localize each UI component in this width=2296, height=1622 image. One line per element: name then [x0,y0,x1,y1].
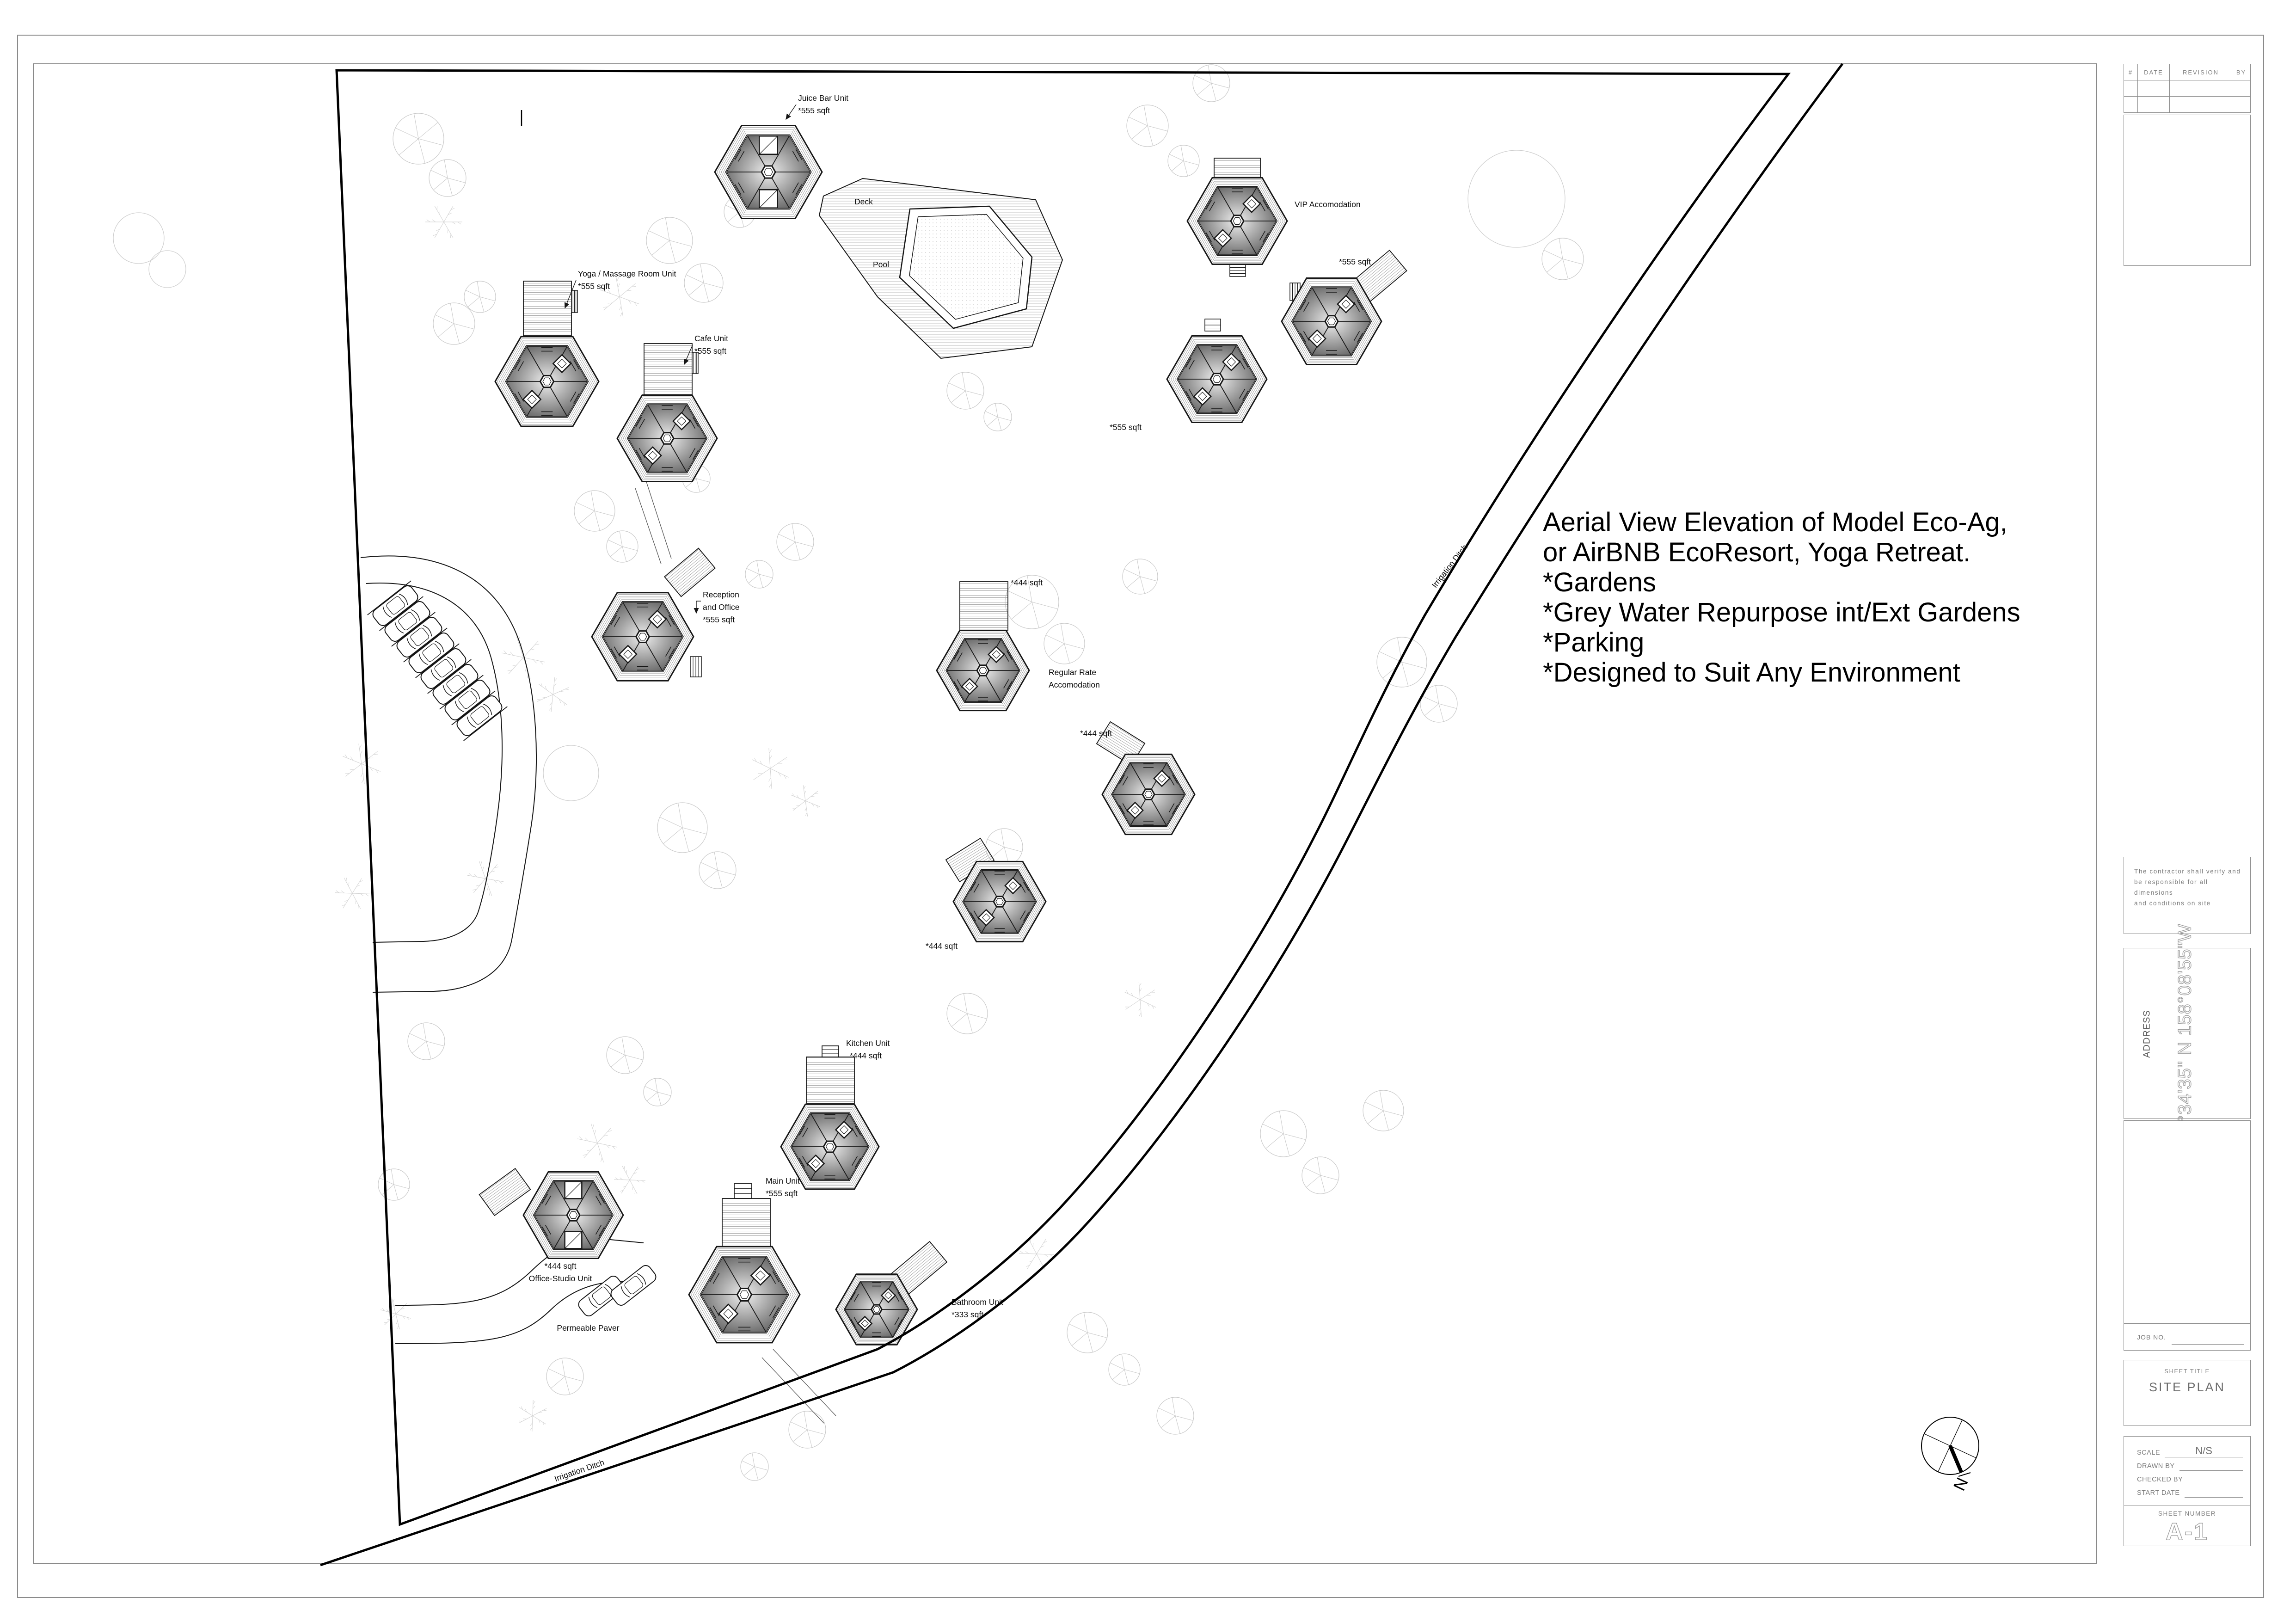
label-text: VIP Accomodation [1295,200,1361,209]
sheet-number-box: SHEET NUMBER A-1 [2124,1505,2250,1550]
main-unit [689,1184,800,1343]
walkway-edge [635,488,661,564]
sheet-number-label: SHEET NUMBER [2124,1510,2250,1517]
vip-label: VIP Accomodation [1295,200,1361,209]
label-text: *333 sqft [952,1310,983,1319]
site-plan-drawing: Juice Bar Unit*555 sqftYoga / Massage Ro… [0,0,2296,1622]
tree-icon [1193,65,1230,102]
unit-444-b [1097,722,1195,835]
unit-porch [644,344,692,398]
label-text: *555 sqft [798,106,830,115]
center-skylight [872,1305,882,1314]
fern-icon [791,785,820,816]
tree-icon [1127,105,1168,147]
unit-chimney [822,1046,839,1057]
tree-icon [1363,1090,1404,1131]
kitchen-label: Kitchen Unit*444 sqft [846,1038,890,1060]
label-text: *555 sqft [766,1189,798,1198]
cafe-unit [617,344,717,482]
center-skylight [823,1141,836,1152]
label-text: *444 sqft [1011,578,1043,587]
revision-row-cell [2170,97,2232,112]
center-skylight [1231,215,1244,227]
tree-icon [657,803,707,853]
fern-icon [1124,982,1156,1017]
fern-icon [335,878,370,909]
center-skylight [540,375,553,387]
contractor-note: The contractor shall verify and be respo… [2134,866,2245,909]
revision-col-num: # [2124,64,2138,80]
job-number-blank [2172,1330,2244,1345]
label-text: Regular Rate [1049,668,1096,677]
tree-icon [1157,1397,1194,1434]
shrub-outline-icon [1468,150,1565,247]
label-text: Bathroom Unit [952,1297,1003,1307]
site-plan: Juice Bar Unit*555 sqftYoga / Massage Ro… [113,64,1979,1565]
project-annotation: Aerial View Elevation of Model Eco-Ag, o… [1543,508,2125,688]
scale-value: N/S [2195,1445,2212,1457]
regular-rate-unit [937,582,1029,711]
tree-icon [1044,623,1085,664]
tree-icon [1260,1111,1307,1157]
label-text: *555 sqft [694,346,726,356]
tree-icon [1109,1354,1140,1385]
checked-by-label: CHECKED BY [2137,1476,2183,1484]
revision-row-cell [2138,80,2170,97]
fern-icon [467,861,504,896]
tree-icon [429,160,466,197]
scale-row: SCALE N/S [2124,1444,2250,1457]
walkways [646,482,671,559]
sheet-title: SITE PLAN [2124,1380,2250,1395]
sheet-title-label: SHEET TITLE [2124,1368,2250,1375]
center-skylight [636,631,650,643]
tree-icon [947,372,984,409]
walkway-edge [646,482,671,559]
label-text: *555 sqft [1339,257,1371,266]
drawing-info-box: SCALE N/S DRAWN BY CHECKED BY START DATE… [2124,1436,2251,1546]
address-label: ADDRESS [2142,1010,2153,1058]
walkway-edge [773,1349,836,1416]
label-text: Permeable Paver [557,1323,619,1333]
tree-icon [745,560,773,588]
fern-icon [614,1166,645,1194]
revision-row-cell [2232,97,2250,112]
tree-icon [607,1037,644,1074]
regular-rate-label: Regular RateAccomodation [1049,668,1100,689]
shrub-outline-icon [149,251,186,288]
fern-icon [752,748,788,789]
sqft-555-right-label: *555 sqft [1339,257,1371,266]
tree-icon [1168,145,1199,177]
compass-needle-icon [1950,1446,1961,1472]
unit-porch [1214,158,1260,178]
checked-by-row: CHECKED BY [2124,1471,2250,1484]
leader-line [696,601,701,613]
revision-row-cell [2138,97,2170,112]
tree-icon [741,1453,768,1481]
compass-north-label: N [1950,1475,1972,1493]
yoga-massage-unit [495,281,599,426]
drawn-by-row: DRAWN BY [2124,1457,2250,1471]
label-text: *555 sqft [1110,423,1142,432]
label-text: *555 sqft [578,282,610,291]
drawn-by-label: DRAWN BY [2137,1462,2175,1471]
main-unit-label: Main Unit*555 sqft [766,1176,800,1198]
reception-office-unit [592,548,715,681]
sheet-number: A-1 [2124,1518,2250,1546]
revision-row-cell [2170,80,2232,97]
address-box: ADDRESS 21°34'35" N 158°08'55"W [2124,948,2251,1119]
center-skylight [737,1289,751,1301]
label-text: Main Unit [766,1176,800,1186]
contractor-note-box: The contractor shall verify and be respo… [2124,857,2251,934]
label-text: *444 sqft [1080,729,1112,738]
fern-icon [537,677,569,712]
unit-chimney [734,1184,752,1198]
start-date-label: START DATE [2137,1489,2180,1498]
center-skylight [1142,789,1154,800]
tree-icon [1123,559,1158,594]
deck-label: Deck [854,197,873,206]
tree-icon [684,264,723,302]
unit-porch [722,1198,770,1247]
unit-555-right [1282,250,1407,364]
tree-icon [644,1078,671,1106]
revision-row-cell [2124,80,2138,97]
tree-icon [433,303,475,344]
scale-label: SCALE [2137,1449,2160,1457]
tree-icon [1542,238,1584,280]
tree-icon [646,217,693,264]
tree-icon [546,1358,583,1395]
fern-icon [425,206,462,238]
tree-icon [1067,1312,1108,1353]
tree-icon [789,1411,826,1448]
label-text: Reception [703,590,739,599]
address-coordinates: 21°34'35" N 158°08'55"W [2175,924,2196,1144]
revision-table: # DATE REVISION BY [2124,64,2251,113]
bathroom-unit [836,1241,947,1345]
juice-bar-label: Juice Bar Unit*555 sqft [786,93,848,119]
revision-col-revision: REVISION [2170,64,2232,80]
permeable-paver-label: Permeable Paver [557,1323,619,1333]
irrigation-ditch-label: Irrigation Ditch [553,1458,605,1484]
tree-icon [393,113,444,164]
shrub-outline-icon [543,745,599,801]
revision-row-cell [2232,80,2250,97]
unit-porch [806,1057,854,1103]
label-text: Yoga / Massage Room Unit [578,269,676,278]
center-skylight [977,665,989,676]
revision-col-by: BY [2232,64,2250,80]
label-text: Accomodation [1049,680,1100,689]
job-number-label: JOB NO. [2137,1333,2166,1341]
fern-icon [343,743,381,784]
unit-444-c [946,838,1046,942]
fern-icon [502,636,545,678]
tree-icon [1302,1157,1339,1194]
sqft-555-left-label: *555 sqft [1110,423,1142,432]
job-number-box: JOB NO. [2124,1324,2251,1351]
unit-porch [479,1168,531,1216]
notes-box [2124,1120,2251,1324]
label-text: *444 sqft [926,941,958,951]
center-skylight [661,433,674,444]
irrigation-ditch-label: Irrigation Ditch [1430,543,1469,590]
drawn-by-blank [2179,1457,2243,1471]
start-date-row: START DATE [2124,1484,2250,1498]
kitchen-unit [781,1046,879,1189]
leader-line [786,104,796,119]
center-skylight [567,1210,580,1221]
label-text: and Office [703,602,739,612]
tree-icon [408,1023,445,1060]
drawing-sheet: { "page": {"sheet_bg": "#ffffff", "line_… [0,0,2296,1622]
center-skylight [1210,374,1223,385]
label-text: Pool [873,260,889,269]
tree-icon [777,523,814,560]
center-skylight [994,897,1006,907]
fern-icon [381,1299,411,1329]
fern-icon [577,1124,617,1162]
unit-porch [523,281,571,336]
label-text: Cafe Unit [694,334,728,343]
scale-blank: N/S [2165,1444,2243,1457]
revision-col-date: DATE [2138,64,2170,80]
unit-555-left [1167,319,1267,423]
tree-icon [574,491,615,531]
office-studio-unit [479,1168,623,1258]
shrub-outline-icon [113,213,164,264]
tree-icon [1377,637,1427,687]
tree-icon [378,1169,410,1200]
label-text: *444 sqft [850,1051,882,1060]
sqft-444-b-label: *444 sqft [1080,729,1112,738]
checked-by-blank [2187,1470,2243,1484]
walkways [773,1349,836,1416]
unit-porch [664,548,715,597]
pool-label: Pool [873,260,889,269]
label-text: Deck [854,197,873,206]
sqft-444-a-label: *444 sqft [1011,578,1043,587]
label-text: *555 sqft [703,615,735,624]
start-date-blank [2185,1484,2243,1498]
juice-bar-unit [715,126,822,219]
revision-row-cell [2124,97,2138,112]
sheet-title-box: SHEET TITLE SITE PLAN [2124,1360,2251,1426]
tree-icon [947,993,988,1034]
tree-icon [984,403,1012,431]
tree-icon [607,531,638,562]
label-text: Kitchen Unit [846,1038,890,1048]
stamp-box [2124,115,2251,266]
sqft-444-c-label: *444 sqft [926,941,958,951]
label-text: Office-Studio Unit [529,1274,592,1283]
reception-label: Receptionand Office*555 sqft [696,590,739,624]
center-skylight [761,166,775,178]
north-compass: N [1922,1417,1979,1493]
tree-icon [464,281,496,313]
label-text: *444 sqft [544,1261,576,1271]
unit-porch [960,582,1008,630]
label-text: Juice Bar Unit [798,93,848,103]
walkways [635,488,661,564]
vip-accomodation-unit [1187,158,1287,276]
fern-icon [519,1400,546,1432]
center-skylight [1325,316,1338,327]
tree-icon [699,852,736,889]
